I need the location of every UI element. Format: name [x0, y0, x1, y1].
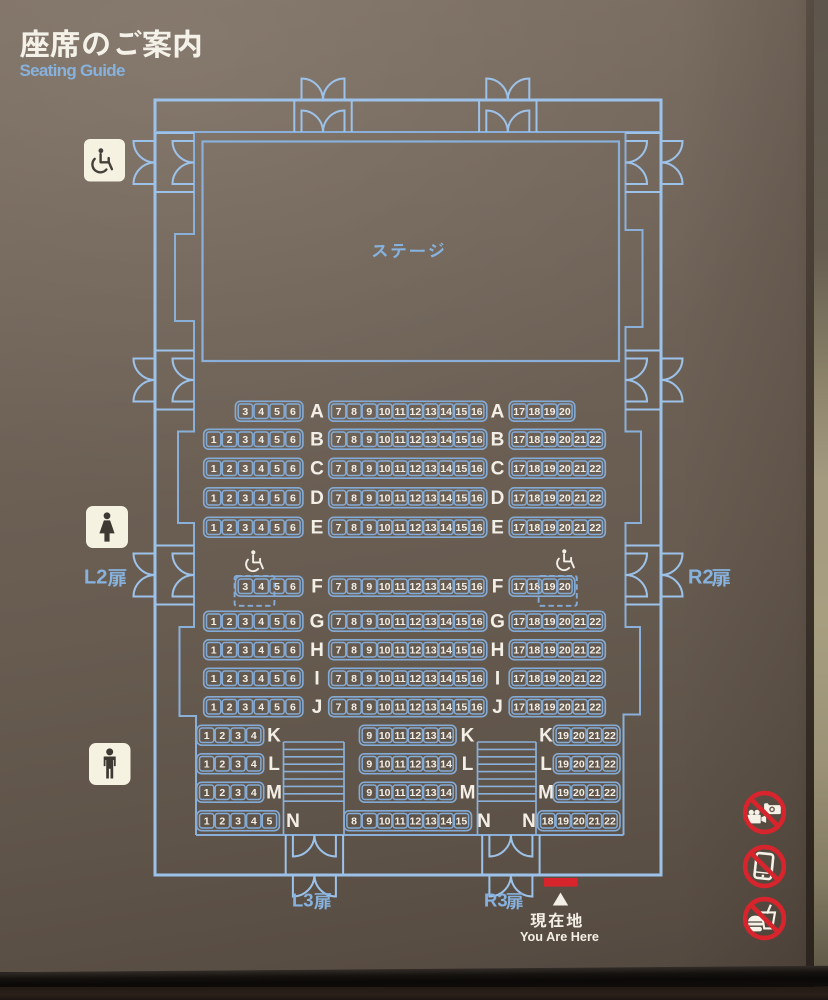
svg-text:9: 9 [366, 406, 372, 418]
svg-text:16: 16 [471, 645, 483, 657]
svg-text:9: 9 [366, 730, 372, 742]
svg-text:6: 6 [290, 463, 296, 475]
svg-text:I: I [314, 668, 319, 689]
svg-text:L2: L2 [84, 567, 107, 589]
svg-text:3: 3 [242, 434, 248, 446]
svg-text:12: 12 [410, 434, 422, 446]
svg-text:8: 8 [351, 434, 357, 446]
svg-text:13: 13 [425, 787, 437, 799]
svg-text:7: 7 [336, 616, 342, 628]
svg-text:15: 15 [456, 581, 468, 593]
svg-text:5: 5 [274, 673, 280, 685]
svg-text:22: 22 [590, 522, 602, 534]
svg-text:20: 20 [559, 493, 571, 505]
svg-text:4: 4 [258, 434, 264, 446]
svg-text:17: 17 [513, 463, 525, 475]
svg-text:10: 10 [379, 522, 391, 534]
svg-text:21: 21 [574, 463, 586, 475]
svg-text:1: 1 [211, 616, 217, 628]
svg-text:13: 13 [425, 434, 437, 446]
svg-text:19: 19 [557, 730, 569, 742]
svg-text:5: 5 [274, 434, 280, 446]
svg-text:18: 18 [529, 406, 541, 418]
svg-text:2: 2 [227, 702, 233, 714]
svg-text:6: 6 [290, 406, 296, 418]
svg-text:J: J [312, 697, 323, 718]
svg-text:5: 5 [274, 463, 280, 475]
svg-text:11: 11 [394, 645, 405, 657]
svg-text:2: 2 [227, 463, 233, 475]
svg-text:19: 19 [557, 759, 569, 771]
svg-text:11: 11 [394, 493, 405, 505]
svg-text:11: 11 [394, 581, 405, 593]
svg-text:4: 4 [258, 463, 264, 475]
svg-text:11: 11 [394, 616, 405, 628]
svg-text:5: 5 [274, 522, 280, 534]
svg-text:15: 15 [456, 522, 468, 534]
svg-text:21: 21 [574, 645, 586, 657]
svg-text:You Are Here: You Are Here [520, 930, 599, 944]
svg-text:5: 5 [274, 493, 280, 505]
svg-text:4: 4 [251, 787, 257, 799]
svg-text:1: 1 [211, 463, 217, 475]
svg-text:15: 15 [456, 645, 468, 657]
svg-text:8: 8 [351, 816, 357, 828]
svg-text:1: 1 [211, 434, 217, 446]
svg-text:9: 9 [366, 645, 372, 657]
svg-text:16: 16 [471, 493, 483, 505]
svg-text:K: K [461, 725, 475, 746]
svg-text:1: 1 [204, 787, 210, 799]
svg-text:20: 20 [559, 616, 571, 628]
svg-text:13: 13 [425, 493, 437, 505]
svg-text:13: 13 [425, 406, 437, 418]
svg-text:7: 7 [336, 673, 342, 685]
svg-text:E: E [311, 517, 324, 538]
svg-text:19: 19 [544, 673, 556, 685]
svg-text:16: 16 [471, 702, 483, 714]
svg-text:7: 7 [336, 463, 342, 475]
svg-text:16: 16 [471, 434, 483, 446]
svg-text:1: 1 [211, 493, 217, 505]
svg-text:22: 22 [604, 816, 616, 828]
svg-text:1: 1 [211, 645, 217, 657]
svg-text:6: 6 [290, 702, 296, 714]
svg-text:9: 9 [366, 434, 372, 446]
svg-text:9: 9 [366, 581, 372, 593]
svg-text:14: 14 [440, 463, 452, 475]
svg-text:8: 8 [351, 702, 357, 714]
svg-text:20: 20 [559, 645, 571, 657]
svg-text:22: 22 [604, 759, 616, 771]
svg-text:12: 12 [410, 730, 422, 742]
svg-text:11: 11 [394, 522, 405, 534]
svg-text:K: K [267, 725, 281, 746]
svg-text:21: 21 [574, 673, 586, 685]
svg-text:14: 14 [440, 581, 452, 593]
svg-text:8: 8 [351, 645, 357, 657]
svg-text:1: 1 [211, 673, 217, 685]
svg-text:21: 21 [574, 434, 586, 446]
svg-text:8: 8 [351, 406, 357, 418]
svg-text:H: H [491, 640, 505, 661]
svg-text:15: 15 [456, 434, 468, 446]
svg-text:10: 10 [379, 406, 391, 418]
svg-text:22: 22 [590, 645, 602, 657]
svg-text:4: 4 [251, 759, 257, 771]
svg-text:19: 19 [544, 645, 556, 657]
svg-text:K: K [539, 725, 553, 746]
svg-text:13: 13 [425, 463, 437, 475]
svg-text:16: 16 [471, 406, 483, 418]
svg-text:L: L [462, 754, 474, 775]
svg-text:18: 18 [529, 493, 541, 505]
svg-text:18: 18 [529, 702, 541, 714]
svg-text:13: 13 [425, 702, 437, 714]
svg-text:16: 16 [471, 522, 483, 534]
svg-text:7: 7 [336, 645, 342, 657]
svg-text:12: 12 [410, 463, 422, 475]
svg-text:10: 10 [379, 434, 391, 446]
svg-text:4: 4 [258, 702, 264, 714]
svg-text:A: A [491, 401, 505, 422]
svg-text:22: 22 [604, 730, 616, 742]
svg-text:2: 2 [227, 493, 233, 505]
svg-text:J: J [492, 697, 503, 718]
svg-text:20: 20 [559, 673, 571, 685]
svg-text:10: 10 [379, 463, 391, 475]
svg-text:17: 17 [513, 493, 525, 505]
svg-text:18: 18 [529, 645, 541, 657]
svg-text:4: 4 [258, 493, 264, 505]
svg-text:10: 10 [379, 645, 391, 657]
svg-text:10: 10 [379, 673, 391, 685]
svg-text:2: 2 [227, 616, 233, 628]
svg-text:14: 14 [440, 730, 452, 742]
svg-text:11: 11 [394, 730, 405, 742]
svg-text:4: 4 [251, 730, 257, 742]
svg-text:21: 21 [574, 702, 586, 714]
svg-text:21: 21 [574, 616, 586, 628]
svg-text:9: 9 [366, 816, 372, 828]
svg-text:2: 2 [219, 730, 225, 742]
svg-text:10: 10 [379, 730, 391, 742]
svg-text:3: 3 [235, 787, 241, 799]
svg-text:H: H [310, 640, 324, 661]
svg-text:3: 3 [242, 581, 248, 593]
svg-text:14: 14 [440, 702, 452, 714]
svg-text:L: L [540, 754, 552, 775]
svg-text:1: 1 [204, 759, 210, 771]
svg-text:15: 15 [456, 406, 468, 418]
svg-text:3: 3 [242, 493, 248, 505]
svg-text:11: 11 [394, 673, 405, 685]
svg-text:13: 13 [425, 522, 437, 534]
svg-text:6: 6 [290, 434, 296, 446]
svg-text:13: 13 [425, 673, 437, 685]
svg-text:17: 17 [513, 434, 525, 446]
svg-text:15: 15 [456, 493, 468, 505]
svg-text:18: 18 [529, 616, 541, 628]
svg-text:22: 22 [604, 787, 616, 799]
svg-text:17: 17 [513, 616, 525, 628]
svg-text:12: 12 [410, 616, 422, 628]
svg-text:20: 20 [573, 759, 585, 771]
svg-text:12: 12 [410, 522, 422, 534]
svg-text:B: B [491, 429, 505, 450]
svg-text:4: 4 [258, 645, 264, 657]
svg-text:1: 1 [204, 730, 210, 742]
svg-text:12: 12 [410, 406, 422, 418]
svg-text:19: 19 [544, 702, 556, 714]
svg-text:19: 19 [544, 406, 556, 418]
svg-text:11: 11 [394, 406, 405, 418]
svg-text:7: 7 [336, 581, 342, 593]
svg-text:18: 18 [529, 434, 541, 446]
svg-text:9: 9 [366, 493, 372, 505]
svg-text:N: N [522, 811, 536, 832]
svg-text:10: 10 [379, 759, 391, 771]
svg-text:15: 15 [456, 673, 468, 685]
svg-text:12: 12 [410, 759, 422, 771]
svg-text:15: 15 [456, 702, 468, 714]
svg-text:4: 4 [258, 673, 264, 685]
svg-text:Seating Guide: Seating Guide [20, 61, 125, 80]
svg-text:17: 17 [513, 645, 525, 657]
svg-text:15: 15 [456, 463, 468, 475]
svg-text:6: 6 [290, 616, 296, 628]
svg-text:8: 8 [351, 522, 357, 534]
svg-text:1: 1 [211, 702, 217, 714]
svg-text:14: 14 [440, 787, 452, 799]
svg-text:1: 1 [211, 522, 217, 534]
svg-text:5: 5 [274, 645, 280, 657]
svg-text:20: 20 [559, 702, 571, 714]
svg-text:22: 22 [590, 673, 602, 685]
svg-text:R2: R2 [688, 567, 714, 589]
svg-text:17: 17 [513, 702, 525, 714]
svg-text:6: 6 [290, 522, 296, 534]
svg-text:6: 6 [290, 673, 296, 685]
svg-text:20: 20 [559, 406, 571, 418]
svg-text:6: 6 [290, 493, 296, 505]
svg-text:17: 17 [513, 522, 525, 534]
svg-text:10: 10 [379, 702, 391, 714]
svg-text:3: 3 [242, 645, 248, 657]
svg-text:14: 14 [440, 406, 452, 418]
svg-text:2: 2 [219, 787, 225, 799]
svg-text:9: 9 [366, 759, 372, 771]
svg-text:3: 3 [242, 702, 248, 714]
svg-text:2: 2 [219, 816, 225, 828]
svg-text:17: 17 [513, 673, 525, 685]
svg-text:8: 8 [351, 673, 357, 685]
svg-text:3: 3 [242, 406, 248, 418]
svg-text:11: 11 [394, 702, 405, 714]
svg-text:18: 18 [542, 816, 554, 828]
svg-text:3: 3 [242, 522, 248, 534]
svg-text:8: 8 [351, 493, 357, 505]
svg-text:21: 21 [589, 759, 601, 771]
svg-text:14: 14 [440, 522, 452, 534]
svg-text:14: 14 [440, 434, 452, 446]
svg-text:3: 3 [242, 673, 248, 685]
svg-text:13: 13 [425, 759, 437, 771]
svg-text:18: 18 [529, 463, 541, 475]
svg-text:L: L [268, 754, 280, 775]
svg-text:5: 5 [266, 816, 272, 828]
svg-text:4: 4 [258, 616, 264, 628]
svg-text:19: 19 [544, 522, 556, 534]
svg-text:13: 13 [425, 616, 437, 628]
svg-text:12: 12 [410, 493, 422, 505]
svg-text:12: 12 [410, 645, 422, 657]
svg-text:12: 12 [410, 702, 422, 714]
svg-text:A: A [310, 401, 324, 422]
svg-text:4: 4 [251, 816, 257, 828]
svg-text:22: 22 [590, 463, 602, 475]
svg-text:7: 7 [336, 702, 342, 714]
svg-text:7: 7 [336, 522, 342, 534]
svg-text:9: 9 [366, 616, 372, 628]
svg-text:N: N [477, 811, 491, 832]
svg-text:10: 10 [379, 816, 391, 828]
svg-text:20: 20 [573, 730, 585, 742]
svg-text:11: 11 [394, 816, 405, 828]
svg-text:14: 14 [440, 493, 452, 505]
svg-text:20: 20 [559, 581, 571, 593]
svg-text:6: 6 [290, 581, 296, 593]
svg-text:5: 5 [274, 406, 280, 418]
svg-text:15: 15 [456, 616, 468, 628]
svg-text:20: 20 [559, 434, 571, 446]
svg-text:B: B [310, 429, 324, 450]
svg-text:20: 20 [573, 816, 585, 828]
svg-text:10: 10 [379, 493, 391, 505]
svg-text:14: 14 [440, 645, 452, 657]
svg-text:15: 15 [456, 816, 468, 828]
svg-text:7: 7 [336, 406, 342, 418]
svg-text:13: 13 [425, 581, 437, 593]
svg-text:L3: L3 [292, 890, 314, 911]
svg-text:13: 13 [425, 730, 437, 742]
svg-text:22: 22 [590, 434, 602, 446]
svg-text:E: E [491, 517, 504, 538]
svg-text:2: 2 [227, 522, 233, 534]
svg-text:11: 11 [394, 787, 405, 799]
svg-text:2: 2 [227, 645, 233, 657]
svg-text:21: 21 [574, 522, 586, 534]
svg-text:G: G [310, 611, 325, 632]
svg-text:18: 18 [529, 522, 541, 534]
svg-text:5: 5 [274, 702, 280, 714]
svg-text:21: 21 [589, 816, 601, 828]
svg-text:19: 19 [544, 434, 556, 446]
svg-text:12: 12 [410, 673, 422, 685]
svg-text:3: 3 [242, 616, 248, 628]
svg-text:4: 4 [258, 406, 264, 418]
svg-text:C: C [310, 458, 324, 479]
svg-text:14: 14 [440, 759, 452, 771]
svg-text:F: F [492, 576, 504, 597]
svg-text:12: 12 [410, 816, 422, 828]
svg-text:10: 10 [379, 616, 391, 628]
svg-text:13: 13 [425, 816, 437, 828]
svg-text:11: 11 [394, 463, 405, 475]
svg-text:8: 8 [351, 616, 357, 628]
svg-text:10: 10 [379, 581, 391, 593]
svg-text:11: 11 [394, 759, 405, 771]
svg-text:5: 5 [274, 616, 280, 628]
svg-text:D: D [491, 488, 505, 509]
svg-text:21: 21 [589, 730, 601, 742]
svg-text:3: 3 [242, 463, 248, 475]
svg-text:3: 3 [235, 759, 241, 771]
svg-text:22: 22 [590, 616, 602, 628]
svg-text:19: 19 [544, 581, 556, 593]
svg-text:9: 9 [366, 702, 372, 714]
svg-text:20: 20 [573, 787, 585, 799]
svg-text:6: 6 [290, 645, 296, 657]
svg-text:9: 9 [366, 522, 372, 534]
svg-text:13: 13 [425, 645, 437, 657]
svg-text:2: 2 [219, 759, 225, 771]
svg-text:14: 14 [440, 673, 452, 685]
svg-text:G: G [490, 611, 505, 632]
svg-text:8: 8 [351, 581, 357, 593]
svg-text:9: 9 [366, 673, 372, 685]
svg-text:M: M [538, 782, 554, 803]
svg-text:16: 16 [471, 581, 483, 593]
svg-text:12: 12 [410, 787, 422, 799]
svg-text:18: 18 [529, 673, 541, 685]
svg-text:20: 20 [559, 522, 571, 534]
svg-text:I: I [495, 668, 500, 689]
svg-text:M: M [266, 782, 282, 803]
svg-text:1: 1 [204, 816, 210, 828]
svg-text:2: 2 [227, 434, 233, 446]
svg-text:N: N [286, 811, 300, 832]
svg-text:D: D [310, 488, 324, 509]
svg-text:19: 19 [557, 816, 569, 828]
svg-text:R3: R3 [484, 890, 508, 911]
svg-text:14: 14 [440, 616, 452, 628]
svg-text:22: 22 [590, 702, 602, 714]
svg-text:21: 21 [574, 493, 586, 505]
svg-text:19: 19 [544, 463, 556, 475]
svg-text:16: 16 [471, 673, 483, 685]
svg-text:4: 4 [258, 581, 264, 593]
svg-text:3: 3 [235, 816, 241, 828]
svg-text:7: 7 [336, 434, 342, 446]
svg-text:21: 21 [589, 787, 601, 799]
svg-text:4: 4 [258, 522, 264, 534]
svg-text:9: 9 [366, 787, 372, 799]
svg-text:2: 2 [227, 673, 233, 685]
svg-text:8: 8 [351, 463, 357, 475]
svg-text:11: 11 [394, 434, 405, 446]
svg-text:22: 22 [590, 493, 602, 505]
svg-text:10: 10 [379, 787, 391, 799]
svg-text:C: C [491, 458, 505, 479]
svg-text:9: 9 [366, 463, 372, 475]
svg-text:14: 14 [440, 816, 452, 828]
svg-text:16: 16 [471, 463, 483, 475]
svg-text:19: 19 [544, 616, 556, 628]
svg-text:F: F [311, 576, 323, 597]
svg-text:7: 7 [336, 493, 342, 505]
svg-text:17: 17 [513, 406, 525, 418]
